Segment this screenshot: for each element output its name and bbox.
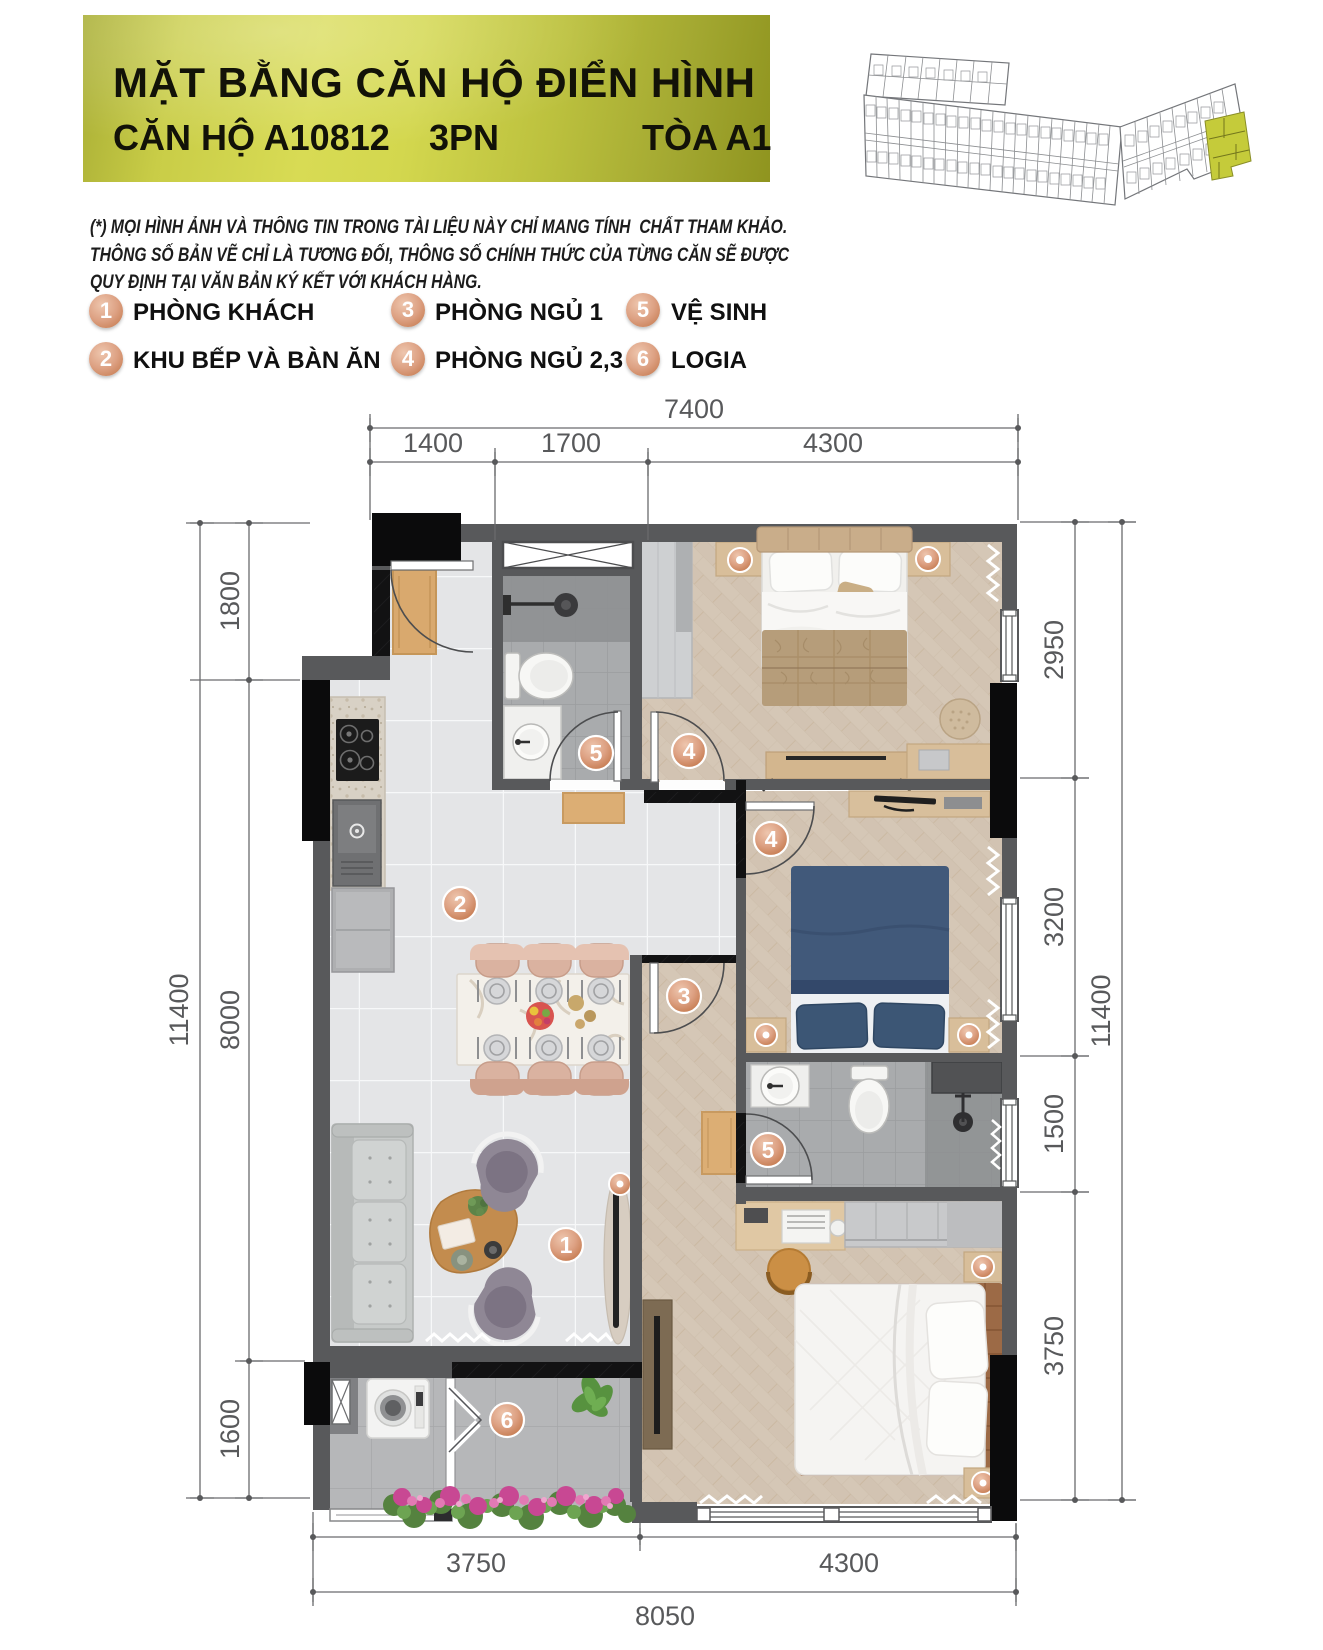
svg-text:1700: 1700: [541, 428, 601, 458]
svg-text:2: 2: [454, 891, 467, 917]
svg-text:1400: 1400: [403, 428, 463, 458]
svg-text:4300: 4300: [819, 1548, 879, 1578]
svg-text:5: 5: [590, 740, 603, 766]
svg-text:3200: 3200: [1039, 887, 1069, 947]
svg-text:1600: 1600: [215, 1399, 245, 1459]
svg-text:3750: 3750: [1039, 1316, 1069, 1376]
svg-text:8000: 8000: [215, 990, 245, 1050]
svg-text:8050: 8050: [635, 1601, 695, 1631]
svg-text:5: 5: [762, 1137, 775, 1163]
svg-text:6: 6: [501, 1407, 514, 1433]
svg-text:11400: 11400: [1086, 974, 1116, 1047]
svg-text:4300: 4300: [803, 428, 863, 458]
svg-text:2950: 2950: [1039, 620, 1069, 680]
svg-text:11400: 11400: [164, 973, 194, 1046]
svg-text:4: 4: [765, 826, 778, 852]
svg-text:3750: 3750: [446, 1548, 506, 1578]
svg-text:1500: 1500: [1039, 1094, 1069, 1154]
svg-text:4: 4: [683, 738, 696, 764]
svg-text:1: 1: [560, 1232, 573, 1258]
svg-text:3: 3: [678, 983, 691, 1009]
svg-text:7400: 7400: [664, 394, 724, 424]
svg-text:1800: 1800: [215, 571, 245, 631]
